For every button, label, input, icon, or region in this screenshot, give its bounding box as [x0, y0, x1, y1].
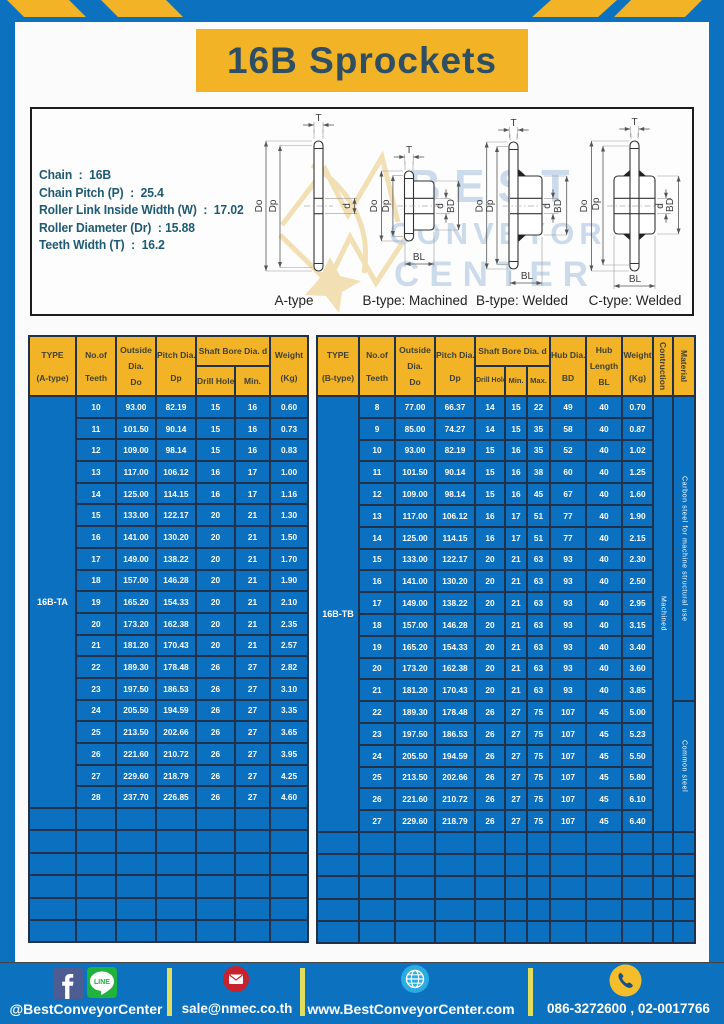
svg-text:Dp: Dp — [591, 197, 602, 210]
svg-text:BD: BD — [446, 199, 457, 213]
svg-text:Dp: Dp — [485, 199, 496, 212]
svg-text:BD: BD — [553, 199, 564, 213]
svg-text:d: d — [542, 203, 553, 209]
svg-text:B-type: Welded: B-type: Welded — [476, 293, 568, 308]
svg-text:T: T — [631, 117, 637, 128]
svg-text:BD: BD — [665, 198, 676, 212]
svg-text:T: T — [315, 113, 321, 124]
svg-text:C-type: Welded: C-type: Welded — [589, 293, 682, 308]
svg-text:BL: BL — [521, 271, 534, 282]
svg-text:BL: BL — [413, 252, 426, 263]
svg-text:Do: Do — [475, 199, 486, 212]
svg-text:Dp: Dp — [268, 199, 279, 212]
svg-text:LINE: LINE — [94, 979, 110, 986]
svg-text:T: T — [406, 145, 412, 156]
svg-text:d: d — [435, 203, 446, 209]
svg-text:B-type: Machined: B-type: Machined — [362, 293, 467, 308]
svg-text:d: d — [342, 203, 353, 209]
svg-text:Do: Do — [254, 199, 265, 212]
svg-text:Dp: Dp — [381, 199, 392, 212]
svg-text:BL: BL — [629, 274, 642, 285]
svg-text:Do: Do — [579, 199, 590, 212]
svg-text:T: T — [510, 118, 516, 129]
svg-text:A-type: A-type — [274, 293, 313, 308]
svg-text:Do: Do — [369, 199, 380, 212]
